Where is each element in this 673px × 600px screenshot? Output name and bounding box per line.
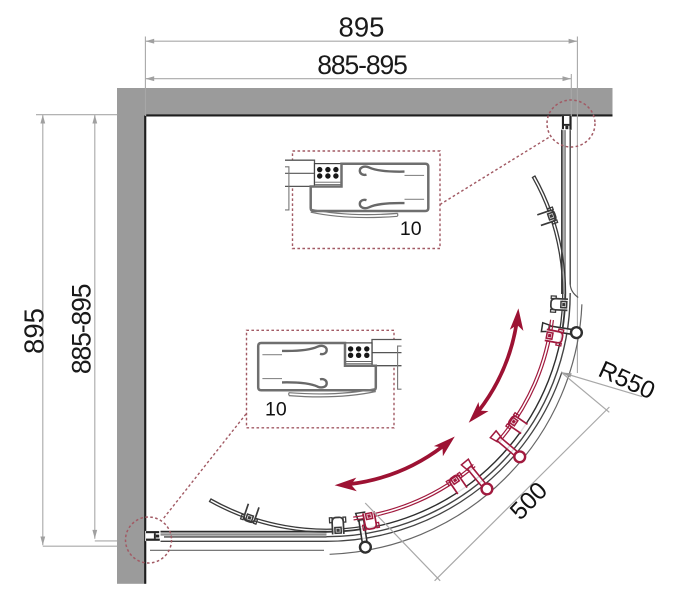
svg-text:885-895: 885-895 <box>317 50 407 80</box>
svg-text:895: 895 <box>18 308 49 354</box>
svg-text:885-895: 885-895 <box>66 284 96 374</box>
svg-text:10: 10 <box>265 398 287 420</box>
svg-text:10: 10 <box>400 218 422 240</box>
svg-text:895: 895 <box>339 12 385 43</box>
